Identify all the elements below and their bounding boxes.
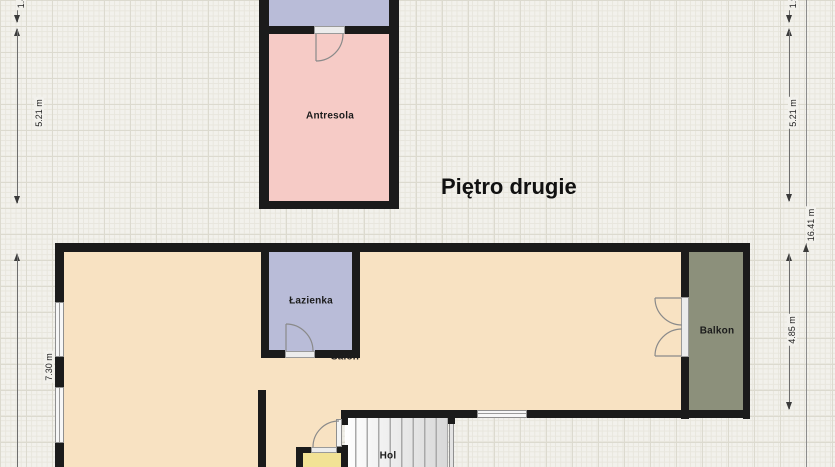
- dimension-label: 16.41 m: [806, 207, 816, 244]
- wall: [352, 243, 360, 358]
- door-opening: [285, 351, 315, 358]
- wall: [743, 243, 750, 419]
- room-label-salon: Salon: [331, 352, 359, 363]
- dimension-label: 4.85 m: [787, 314, 797, 346]
- dimension-arrow: [786, 15, 792, 23]
- dimension-label: 7.30 m: [44, 351, 54, 383]
- wall: [341, 447, 348, 467]
- dimension-label: 5.21 m: [34, 97, 44, 129]
- dimension-line: [17, 29, 18, 203]
- wall: [259, 26, 315, 34]
- door-opening: [311, 447, 337, 453]
- wall: [341, 410, 477, 418]
- dimension-arrow: [786, 402, 792, 410]
- room-upper-landing: [269, 0, 389, 27]
- wall: [527, 410, 750, 418]
- window: [55, 302, 64, 357]
- wall: [261, 350, 285, 358]
- room-label-hol: Hol: [380, 451, 397, 462]
- wall: [55, 357, 64, 387]
- wall: [681, 252, 689, 297]
- wall-stub: [258, 390, 266, 467]
- wall: [341, 418, 348, 425]
- floor-title: Piętro drugie: [441, 174, 577, 200]
- room-label-balkon: Balkon: [700, 326, 735, 337]
- room-salon: [64, 252, 681, 412]
- room-label-antresola: Antresola: [306, 111, 354, 122]
- dimension-label: 1.9: [788, 0, 798, 10]
- dimension-arrow: [14, 15, 20, 23]
- dimension-arrow: [786, 194, 792, 202]
- french-door-opening: [681, 297, 689, 357]
- wall: [261, 252, 269, 358]
- stair-railing: [449, 424, 454, 467]
- wall: [296, 447, 312, 453]
- wall: [55, 252, 64, 302]
- window: [55, 387, 64, 443]
- wall: [448, 410, 455, 424]
- room-label-lazienka: Łazienka: [289, 296, 333, 307]
- dimension-arrow: [803, 244, 809, 252]
- door-leaf: [336, 419, 342, 447]
- wall: [344, 26, 399, 34]
- wall: [55, 443, 64, 467]
- floor-plan-canvas: Antresola Piętro drugie: [0, 0, 835, 467]
- door-opening: [314, 26, 345, 34]
- dimension-label: 5.21 m: [788, 97, 798, 129]
- wall: [259, 201, 399, 209]
- window: [477, 410, 527, 418]
- wall: [55, 243, 750, 252]
- dimension-label: 1.4: [16, 0, 26, 10]
- dimension-arrow: [14, 196, 20, 204]
- dimension-line: [17, 255, 18, 467]
